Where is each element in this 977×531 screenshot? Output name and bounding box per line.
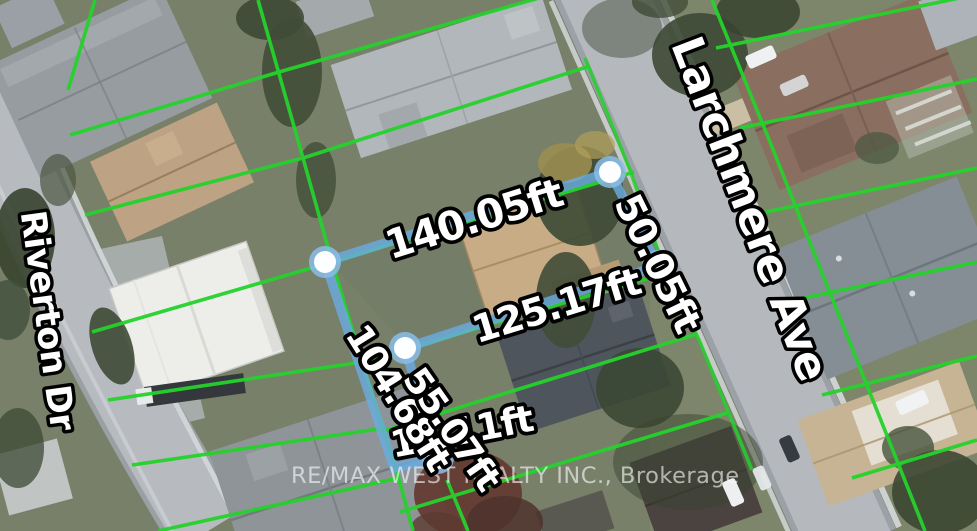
parcel-vertex-handle[interactable]: [309, 246, 341, 278]
aerial-property-map: RE/MAX WEST REALTY INC., Brokerage 15.11…: [0, 0, 977, 531]
brokerage-watermark: RE/MAX WEST REALTY INC., Brokerage: [291, 463, 740, 489]
parcel-vertex-handle[interactable]: [594, 156, 626, 188]
